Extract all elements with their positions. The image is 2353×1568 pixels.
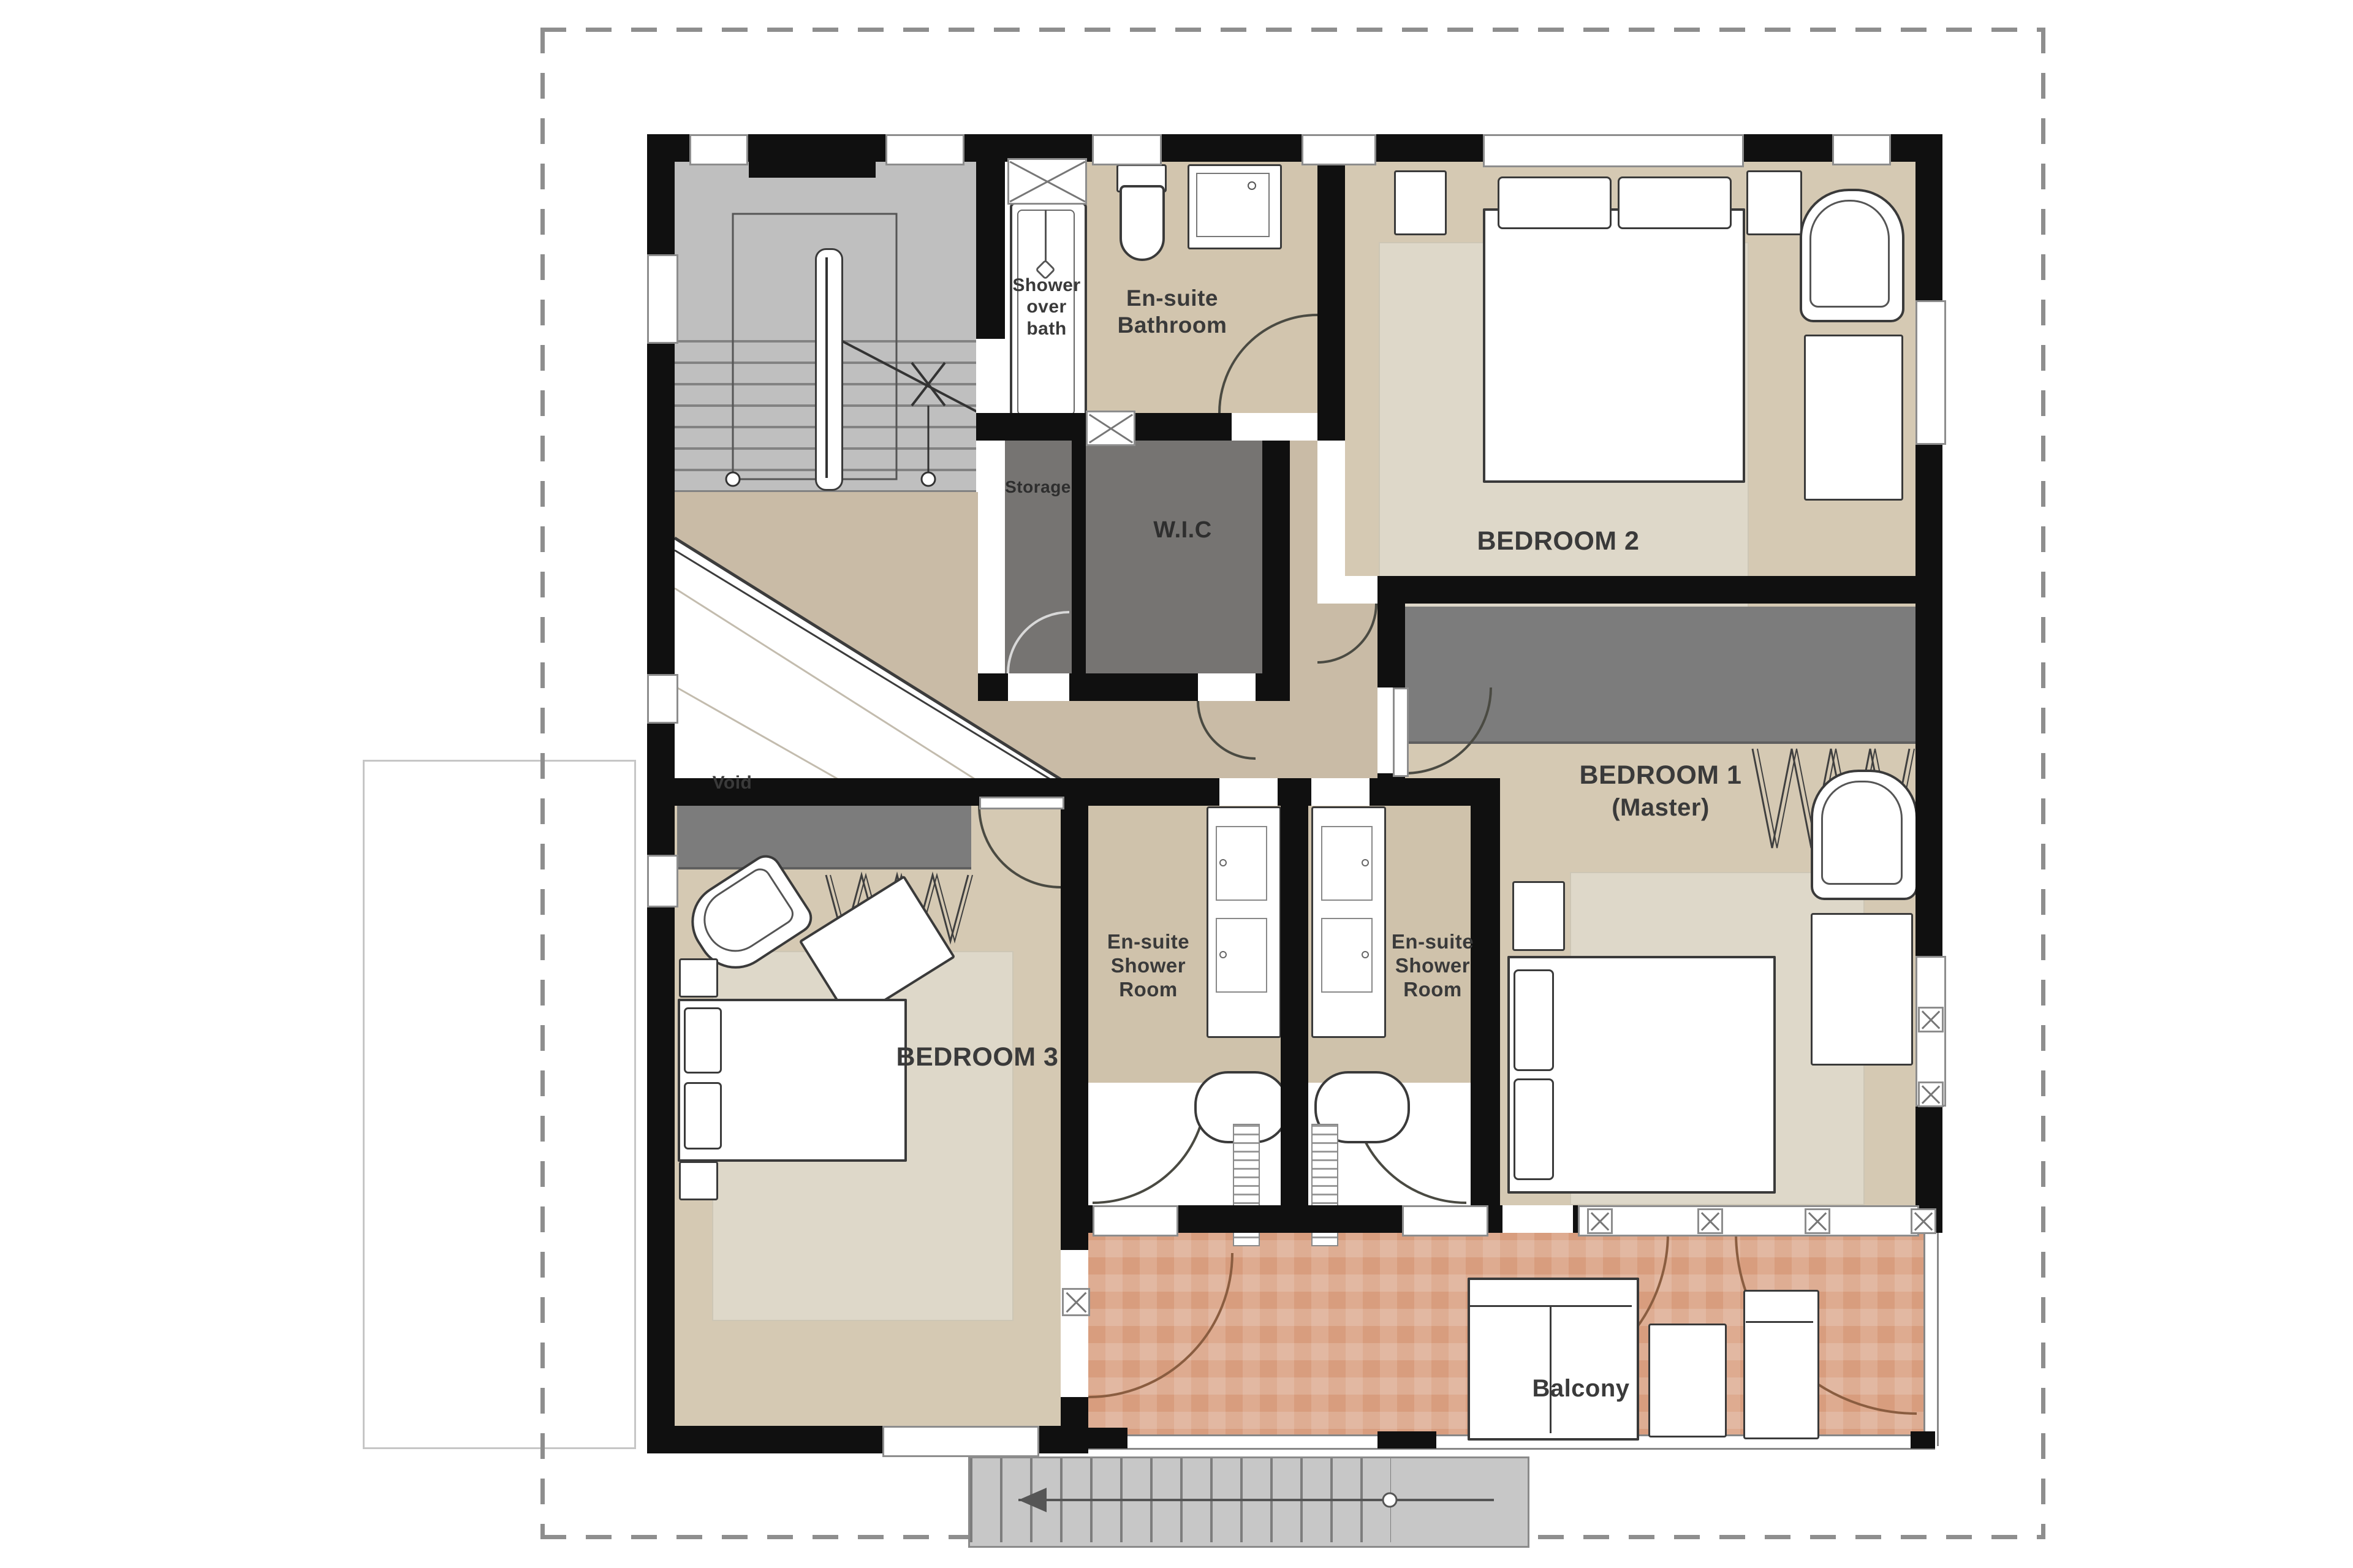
- window-top-5: [1832, 134, 1891, 165]
- wall-storage-wic: [1072, 441, 1086, 673]
- wall-wic-east: [1262, 441, 1290, 673]
- balcony-lounger: [1743, 1290, 1819, 1439]
- bedroom1-pillow-bottom: [1514, 1078, 1554, 1180]
- bedroom3-nightstand-bottom: [679, 1161, 718, 1200]
- bathroom-basin-tap: [1248, 181, 1256, 190]
- stair-newel-left: [726, 472, 740, 486]
- window-top-1: [689, 134, 748, 165]
- sill-xmark-bath: [1007, 158, 1087, 205]
- window-top-4: [1302, 134, 1376, 165]
- door-arc-balcony-west: [1088, 1253, 1232, 1397]
- bedroom2-bed: [1483, 208, 1745, 483]
- window-left-1: [647, 254, 678, 344]
- label-bedroom2: BEDROOM 2: [1436, 526, 1681, 557]
- bathroom-basin-inner: [1196, 173, 1270, 237]
- wall-bedroom2-south: [1377, 576, 1942, 604]
- balcony-glazing-master: [1578, 1205, 1919, 1237]
- label-shower-room-left: En-suite Shower Room: [1096, 930, 1201, 1002]
- toilet-bowl: [1120, 185, 1165, 261]
- shower-head-stem: [1045, 210, 1047, 265]
- bedroom2-pillow-left: [1498, 176, 1612, 229]
- bedroom1-nightstand-top: [1512, 881, 1565, 951]
- bedroom1-armchair-inner: [1821, 781, 1903, 885]
- label-bedroom1-master: (Master): [1538, 793, 1783, 822]
- mullion-xmark-3: [1805, 1208, 1830, 1234]
- window-top-3: [1092, 134, 1162, 165]
- door-arc-storage: [1008, 612, 1069, 673]
- window-right-bedroom2: [1915, 300, 1946, 445]
- mullion-xmark-4: [1911, 1208, 1936, 1234]
- door-arc-bedroom3: [979, 806, 1061, 887]
- wall-top: [647, 134, 1942, 162]
- shower-left-tap-1: [1219, 859, 1227, 866]
- door-arc-wic: [1198, 701, 1256, 759]
- door-gap-shower-left: [1219, 778, 1278, 806]
- stair-handrail: [815, 248, 843, 491]
- balcony-sofa: [1468, 1278, 1639, 1441]
- wall-shower-center: [1281, 778, 1308, 1233]
- balcony-table: [1648, 1324, 1727, 1437]
- stair-arrow-head: [1018, 1488, 1047, 1512]
- door-leaf-bedroom1: [1393, 687, 1409, 777]
- door-gap-bathroom: [1232, 413, 1317, 441]
- label-shower-over-bath: Shower over bath: [1009, 275, 1085, 339]
- door-gap-wic: [1198, 673, 1256, 701]
- label-bedroom3: BEDROOM 3: [889, 1042, 1066, 1073]
- door-gap-shower-right: [1311, 778, 1370, 806]
- door-gap-balcony-bedroom3: [1061, 1250, 1088, 1397]
- wall-shower-north: [1088, 778, 1471, 806]
- stair-handrail-core: [825, 257, 828, 478]
- balcony-post-sw: [1088, 1428, 1127, 1449]
- door-gap-bedroom2: [1317, 576, 1377, 604]
- balcony-door-west: [1093, 1205, 1178, 1237]
- bedroom1-side-table: [1811, 913, 1913, 1066]
- stair-arrow-origin: [1383, 1493, 1396, 1507]
- label-void: Void: [692, 772, 772, 793]
- door-arc-bedroom1: [1405, 687, 1491, 773]
- label-bedroom1: BEDROOM 1: [1538, 760, 1783, 791]
- mullion-xmark-bedroom3-balcony: [1062, 1288, 1090, 1316]
- shower-left-tap-2: [1219, 951, 1227, 958]
- mullion-xmark-2: [1697, 1208, 1723, 1234]
- balcony-lounger-backline: [1746, 1321, 1813, 1323]
- mullion-xmark-right-2: [1918, 1081, 1944, 1107]
- balcony-post-mid: [1377, 1431, 1436, 1449]
- label-storage: Storage: [1001, 477, 1075, 497]
- balcony-post-se: [1911, 1431, 1935, 1449]
- opening-stair-landing: [976, 339, 1005, 413]
- wall-top-notch: [749, 161, 876, 178]
- bedroom2-side-table: [1804, 335, 1903, 501]
- bedroom2-nightstand-right: [1746, 170, 1802, 235]
- bedroom3-nightstand-top: [679, 958, 718, 998]
- window-left-2: [647, 674, 678, 724]
- wall-bath-bedroom2: [1317, 161, 1345, 441]
- shower-right-tap-2: [1362, 951, 1369, 958]
- window-bedroom3-south: [882, 1426, 1039, 1457]
- floor-plan: Shower over bath En-suite Bathroom BEDRO…: [0, 0, 2353, 1568]
- label-balcony: Balcony: [1514, 1374, 1648, 1403]
- door-arc-bedroom2: [1317, 604, 1376, 662]
- bedroom2-armchair-inner: [1809, 200, 1890, 308]
- window-top-2: [885, 134, 964, 165]
- mullion-xmark-right-1: [1918, 1007, 1944, 1032]
- door-arc-shower-left: [1093, 1089, 1207, 1203]
- balcony-sofa-divider: [1550, 1307, 1552, 1433]
- door-gap-storage: [1008, 673, 1069, 701]
- label-wic: W.I.C: [1127, 517, 1238, 544]
- shower-right-tap-1: [1362, 859, 1369, 866]
- wall-master-door-column: [1377, 604, 1405, 687]
- bedroom1-pillow-top: [1514, 969, 1554, 1071]
- bedroom3-pillow-bottom: [684, 1082, 722, 1149]
- label-ensuite-bathroom: En-suite Bathroom: [1096, 285, 1249, 338]
- bedroom2-pillow-right: [1618, 176, 1732, 229]
- label-shower-room-right: En-suite Shower Room: [1380, 930, 1485, 1002]
- door-leaf-bedroom3: [979, 797, 1064, 809]
- sill-xmark-wic: [1086, 411, 1135, 446]
- window-left-3: [647, 855, 678, 907]
- stair-newel-right: [922, 472, 935, 486]
- mullion-xmark-1: [1587, 1208, 1613, 1234]
- balcony-window-mid: [1402, 1205, 1488, 1237]
- bedroom2-nightstand-left: [1394, 170, 1447, 235]
- window-top-bedhead-niche: [1483, 134, 1744, 167]
- wall-stair-bath: [976, 161, 1005, 339]
- bedroom3-pillow-top: [684, 1007, 722, 1074]
- balcony-door-master: [1502, 1205, 1573, 1233]
